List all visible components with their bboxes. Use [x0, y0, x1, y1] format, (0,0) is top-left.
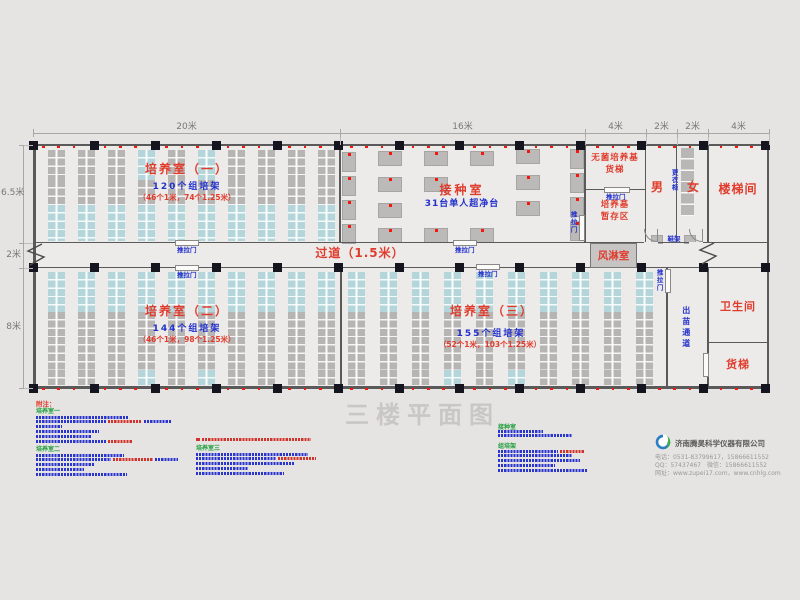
wall-marker-dot — [566, 388, 569, 391]
rack-segment — [412, 312, 429, 370]
left-dimension-label: 6.5米 — [1, 189, 21, 199]
structural-column — [212, 263, 221, 272]
rack-segment — [318, 150, 335, 180]
wall-marker-dot — [689, 146, 692, 149]
left-dimension-label: 8米 — [1, 323, 21, 333]
wall-marker-dot — [412, 388, 415, 391]
male-room-label: 男 — [651, 181, 663, 194]
female-room-label: 女 — [687, 181, 699, 194]
structural-column — [395, 384, 404, 393]
bench-indicator-dot — [576, 174, 579, 177]
wall-marker-dot — [104, 388, 107, 391]
structural-column — [151, 141, 160, 150]
wall-marker-dot — [658, 146, 661, 149]
medium-elevator-line2: 货梯 — [605, 166, 624, 175]
wall-marker-dot — [596, 146, 599, 149]
wall-marker-dot — [673, 146, 676, 149]
wall-marker-dot — [42, 388, 45, 391]
wall-marker-dot — [304, 146, 307, 149]
room-title-3: 培养室（三） — [450, 305, 534, 318]
bench-indicator-dot — [527, 202, 530, 205]
rack-segment — [258, 150, 275, 180]
note-line-segment — [498, 454, 572, 457]
rack-segment — [48, 370, 65, 385]
room-count-2: 144个组培架 — [153, 325, 222, 335]
rack-segment — [318, 370, 335, 385]
wall-marker-dot — [242, 388, 245, 391]
note-line-segment — [36, 454, 124, 457]
inoculation-title: 接种室 — [439, 184, 484, 197]
structural-column — [334, 263, 343, 272]
dim-tick — [340, 129, 341, 137]
note-line-segment — [498, 459, 580, 462]
wall-marker-dot — [442, 388, 445, 391]
rack-segment — [228, 370, 245, 385]
rack-segment — [348, 272, 365, 312]
structural-column — [761, 384, 770, 393]
dim-extension — [24, 243, 33, 244]
rack-segment — [138, 205, 155, 241]
structural-column — [515, 384, 524, 393]
rack-segment — [572, 272, 589, 312]
rack-segment — [288, 312, 305, 370]
rack-segment — [412, 272, 429, 312]
note-line-segment — [36, 416, 129, 419]
wall-marker-dot — [42, 146, 45, 149]
wall-marker-dot — [365, 388, 368, 391]
structural-column — [637, 384, 646, 393]
bench-indicator-dot — [435, 229, 438, 232]
note-line-segment — [196, 472, 284, 475]
wall-marker-dot — [196, 388, 199, 391]
door-leaf — [702, 229, 703, 242]
sliding-door-label: 推拉门 — [478, 271, 498, 278]
wall-marker-dot — [720, 146, 723, 149]
rack-segment — [108, 205, 125, 241]
structural-column — [90, 384, 99, 393]
wall-marker-dot — [119, 146, 122, 149]
sliding-door-label: 推拉门 — [655, 269, 662, 292]
note-line-segment — [498, 434, 572, 437]
wall-marker-dot — [319, 388, 322, 391]
note-line-segment — [36, 440, 106, 443]
rack-segment — [636, 312, 653, 370]
room-detail-1: （46个1米，74个1.25米） — [138, 194, 235, 202]
rack-segment — [258, 205, 275, 241]
top-dimension-label: 4米 — [731, 123, 746, 133]
structural-column — [576, 141, 585, 150]
note-line-segment — [36, 473, 127, 476]
wall-marker-dot — [319, 146, 322, 149]
rack-segment — [348, 370, 365, 385]
rack-segment — [48, 272, 65, 312]
rack-segment — [288, 150, 305, 180]
rack-segment — [348, 312, 365, 370]
bench-indicator-dot — [435, 178, 438, 181]
rack-segment — [198, 205, 215, 241]
wall-marker-dot — [473, 388, 476, 391]
wall-break-symbol — [698, 242, 718, 266]
wall-marker-dot — [227, 146, 230, 149]
bench-indicator-dot — [389, 229, 392, 232]
sliding-door-label: 推拉门 — [569, 211, 576, 234]
dim-extension — [769, 134, 770, 145]
wall-marker-dot — [350, 146, 353, 149]
rack-segment — [108, 272, 125, 312]
structural-column — [699, 141, 708, 150]
rack-segment — [258, 180, 275, 205]
note-line-segment — [113, 458, 153, 461]
medium-elevator-line1: 无菌培养基 — [591, 154, 639, 163]
bench-indicator-dot — [389, 204, 392, 207]
wall-marker-dot — [427, 146, 430, 149]
rack-segment — [78, 205, 95, 241]
toilet-label: 卫生间 — [720, 301, 756, 313]
wall-marker-dot — [735, 146, 738, 149]
wall-marker-dot — [350, 388, 353, 391]
wall-marker-dot — [165, 388, 168, 391]
top-dimension-label: 20米 — [176, 123, 196, 133]
rack-segment — [168, 205, 185, 241]
bench-indicator-dot — [576, 150, 579, 153]
wall-marker-dot — [720, 388, 723, 391]
wall-marker-dot — [104, 146, 107, 149]
company-block: 济南腾昊科学仪器有限公司 电话：0531-83799617，1586661155… — [655, 433, 795, 478]
rack-segment — [108, 150, 125, 180]
room-count-1: 120个组培架 — [153, 183, 222, 193]
wall — [676, 146, 677, 243]
rack-segment — [412, 370, 429, 385]
wall-marker-dot — [381, 388, 384, 391]
structural-column — [576, 384, 585, 393]
wall-marker-dot — [442, 146, 445, 149]
inoculation-detail: 31台单人超净台 — [425, 200, 500, 210]
wall-marker-dot — [550, 388, 553, 391]
top-dimension-label: 16米 — [452, 123, 472, 133]
top-dimension-line — [33, 133, 769, 134]
note-line-segment — [108, 420, 142, 423]
wall-marker-dot — [227, 388, 230, 391]
wall-marker-dot — [489, 146, 492, 149]
structural-column — [761, 263, 770, 272]
wall-marker-dot — [673, 388, 676, 391]
structural-column — [455, 384, 464, 393]
rack-segment — [288, 205, 305, 241]
wall-marker-dot — [258, 146, 261, 149]
rack-segment — [258, 312, 275, 370]
note-line-segment — [36, 463, 94, 466]
structural-column — [395, 141, 404, 150]
note-line-segment — [196, 462, 294, 465]
bench-indicator-dot — [435, 152, 438, 155]
structural-column — [90, 141, 99, 150]
structural-column — [515, 263, 524, 272]
note-line-segment — [196, 453, 308, 456]
wall-marker-dot — [242, 146, 245, 149]
sliding-door — [604, 187, 630, 193]
wall-marker-dot — [473, 146, 476, 149]
rack-segment — [108, 180, 125, 205]
structural-column — [151, 263, 160, 272]
rack-segment — [540, 370, 557, 385]
rack-segment — [48, 312, 65, 370]
rack-segment — [540, 312, 557, 370]
wall-marker-dot — [288, 146, 291, 149]
note-line-segment — [155, 458, 178, 461]
rack-segment — [380, 312, 397, 370]
room-count-3: 155个组培架 — [457, 330, 526, 340]
structural-column — [699, 384, 708, 393]
wall-marker-dot — [73, 388, 76, 391]
wall-marker-dot — [612, 388, 615, 391]
wall-marker-dot — [550, 146, 553, 149]
structural-column — [395, 263, 404, 272]
wall-marker-dot — [427, 388, 430, 391]
rack-segment — [572, 312, 589, 370]
note-line-segment — [196, 457, 276, 460]
wall-marker-dot — [504, 388, 507, 391]
note-line-segment — [196, 467, 248, 470]
freight-elevator-label: 货梯 — [726, 359, 750, 371]
rack-segment — [78, 312, 95, 370]
floor-plan-page: 三楼平面图 济南腾昊科学仪器有限公司 电话：0531-83799617，1586… — [0, 0, 800, 600]
sliding-door-label: 推拉门 — [177, 247, 197, 254]
wall-marker-dot — [504, 146, 507, 149]
structural-column — [515, 141, 524, 150]
rack-segment — [228, 272, 245, 312]
bench-indicator-dot — [348, 225, 351, 228]
note-line-segment — [498, 464, 555, 467]
company-logo-icon — [655, 434, 671, 450]
room-title-2: 培养室（二） — [145, 305, 229, 318]
company-web: 网址：www.zupei17.com，www.cnhlg.com — [655, 468, 781, 477]
rack-segment — [48, 150, 65, 180]
rack-segment — [78, 180, 95, 205]
dim-tick — [708, 129, 709, 137]
sliding-door — [175, 265, 199, 271]
rack-segment — [288, 370, 305, 385]
note-line-segment — [202, 438, 311, 441]
sliding-door — [703, 353, 709, 377]
wall-marker-dot — [612, 146, 615, 149]
note-line-segment — [498, 469, 587, 472]
bench-indicator-dot — [348, 177, 351, 180]
note-line-segment — [36, 458, 111, 461]
rack-segment — [380, 272, 397, 312]
dim-tick — [646, 129, 647, 137]
rack-segment — [48, 180, 65, 205]
structural-column — [273, 263, 282, 272]
wall-marker-dot — [689, 388, 692, 391]
wall-marker-dot — [258, 388, 261, 391]
note-line-segment — [560, 450, 585, 453]
wall-marker-dot — [288, 388, 291, 391]
wall — [33, 242, 769, 243]
rack-segment — [540, 272, 557, 312]
bench-indicator-dot — [527, 176, 530, 179]
rack-segment — [318, 205, 335, 241]
rack-segment — [636, 272, 653, 312]
wall-marker-dot — [365, 146, 368, 149]
rack-segment — [604, 272, 621, 312]
shoe-rack-label: 鞋架 — [668, 236, 681, 243]
wall-marker-dot — [489, 388, 492, 391]
structural-column — [273, 384, 282, 393]
air-shower-room: 风淋室 — [590, 243, 637, 268]
rack-segment — [228, 150, 245, 180]
bench-indicator-dot — [389, 152, 392, 155]
room-detail-2: （46个1米，98个1.25米） — [138, 336, 235, 344]
wall-marker-dot — [181, 388, 184, 391]
wall — [707, 342, 769, 343]
wall-marker-dot — [412, 146, 415, 149]
structural-column — [637, 263, 646, 272]
wall-marker-dot — [566, 146, 569, 149]
structural-column — [151, 384, 160, 393]
rack-segment — [318, 312, 335, 370]
note-line-segment — [498, 450, 558, 453]
note-line-segment — [36, 468, 84, 471]
dim-extension — [24, 268, 33, 269]
left-dimension-line — [23, 145, 24, 388]
rack-segment — [78, 272, 95, 312]
wall — [340, 268, 342, 387]
wall-marker-dot — [627, 146, 630, 149]
page-title: 三楼平面图 — [345, 402, 500, 428]
structural-column — [90, 263, 99, 272]
rack-segment — [318, 180, 335, 205]
rack-segment — [108, 370, 125, 385]
rack-segment — [228, 205, 245, 241]
wardrobe-label: 更衣柜 — [670, 169, 677, 192]
rack-segment — [108, 312, 125, 370]
note-line-segment — [196, 438, 200, 441]
medium-storage-line2: 暂存区 — [601, 213, 630, 222]
room-title-1: 培养室（一） — [145, 163, 229, 176]
wall-marker-dot — [73, 146, 76, 149]
wall-marker-dot — [57, 388, 60, 391]
rack-segment — [604, 370, 621, 385]
structural-column — [334, 141, 343, 150]
wall-marker-dot — [535, 146, 538, 149]
wall — [707, 146, 709, 243]
medium-storage-line1: 培养基 — [601, 201, 630, 210]
sliding-door — [665, 269, 671, 293]
sliding-door — [453, 240, 477, 246]
dim-extension — [24, 145, 33, 146]
note-line-segment — [36, 420, 106, 423]
rack-segment — [604, 312, 621, 370]
top-dimension-label: 4米 — [608, 123, 623, 133]
company-name: 济南腾昊科学仪器有限公司 — [675, 438, 765, 449]
sliding-door-label: 推拉门 — [455, 247, 475, 254]
sliding-door — [175, 240, 199, 246]
top-dimension-label: 2米 — [685, 123, 700, 133]
rack-segment — [168, 370, 185, 385]
dim-tick — [585, 129, 586, 137]
bench-indicator-dot — [576, 198, 579, 201]
rack-segment — [78, 150, 95, 180]
structural-column — [637, 141, 646, 150]
rack-segment — [258, 272, 275, 312]
note-line-segment — [36, 430, 99, 433]
bench-indicator-dot — [481, 229, 484, 232]
structural-column — [273, 141, 282, 150]
wall-marker-dot — [304, 388, 307, 391]
wall-marker-dot — [381, 146, 384, 149]
note-line-segment — [36, 435, 91, 438]
wall-marker-dot — [627, 388, 630, 391]
bench-indicator-dot — [527, 150, 530, 153]
wall-marker-dot — [165, 146, 168, 149]
bench-indicator-dot — [389, 178, 392, 181]
note-line-segment — [36, 425, 62, 428]
corridor-label: 过道（1.5米） — [315, 247, 404, 260]
structural-column — [455, 141, 464, 150]
room-detail-3: （52个1米，103个1.25米） — [439, 341, 541, 349]
wall-marker-dot — [535, 388, 538, 391]
sliding-door — [579, 215, 585, 241]
structural-column — [576, 263, 585, 272]
bench-indicator-dot — [348, 153, 351, 156]
rack-segment — [288, 180, 305, 205]
dim-extension — [24, 388, 33, 389]
sliding-door — [476, 264, 500, 270]
sliding-door-label: 推拉门 — [177, 272, 197, 279]
bench-indicator-dot — [348, 201, 351, 204]
wall-marker-dot — [181, 146, 184, 149]
wall-marker-dot — [134, 388, 137, 391]
seedling-passage-label: 出苗通道 — [681, 306, 690, 350]
structural-column — [334, 384, 343, 393]
note-line-segment — [108, 440, 133, 443]
note-line-segment — [498, 430, 543, 433]
stairwell-label: 楼梯间 — [718, 183, 757, 196]
rack-segment — [476, 370, 493, 385]
wall — [339, 146, 341, 243]
door-leaf — [657, 229, 658, 242]
structural-column — [212, 384, 221, 393]
dim-tick — [677, 129, 678, 137]
rack-segment — [48, 205, 65, 241]
wall-break-symbol — [26, 243, 46, 267]
wall-marker-dot — [750, 388, 753, 391]
note-line-segment — [278, 457, 316, 460]
dim-tick — [33, 129, 34, 137]
bench-indicator-dot — [481, 152, 484, 155]
wall-marker-dot — [750, 146, 753, 149]
wall-marker-dot — [119, 388, 122, 391]
top-dimension-label: 2米 — [654, 123, 669, 133]
rack-segment — [288, 272, 305, 312]
rack-segment — [318, 272, 335, 312]
wall-marker-dot — [196, 146, 199, 149]
wall-marker-dot — [134, 146, 137, 149]
note-line-segment — [144, 420, 171, 423]
wall-marker-dot — [735, 388, 738, 391]
wall-marker-dot — [658, 388, 661, 391]
wall-marker-dot — [57, 146, 60, 149]
structural-column — [212, 141, 221, 150]
structural-column — [455, 263, 464, 272]
wall-marker-dot — [596, 388, 599, 391]
left-dimension-label: 2米 — [1, 251, 21, 261]
